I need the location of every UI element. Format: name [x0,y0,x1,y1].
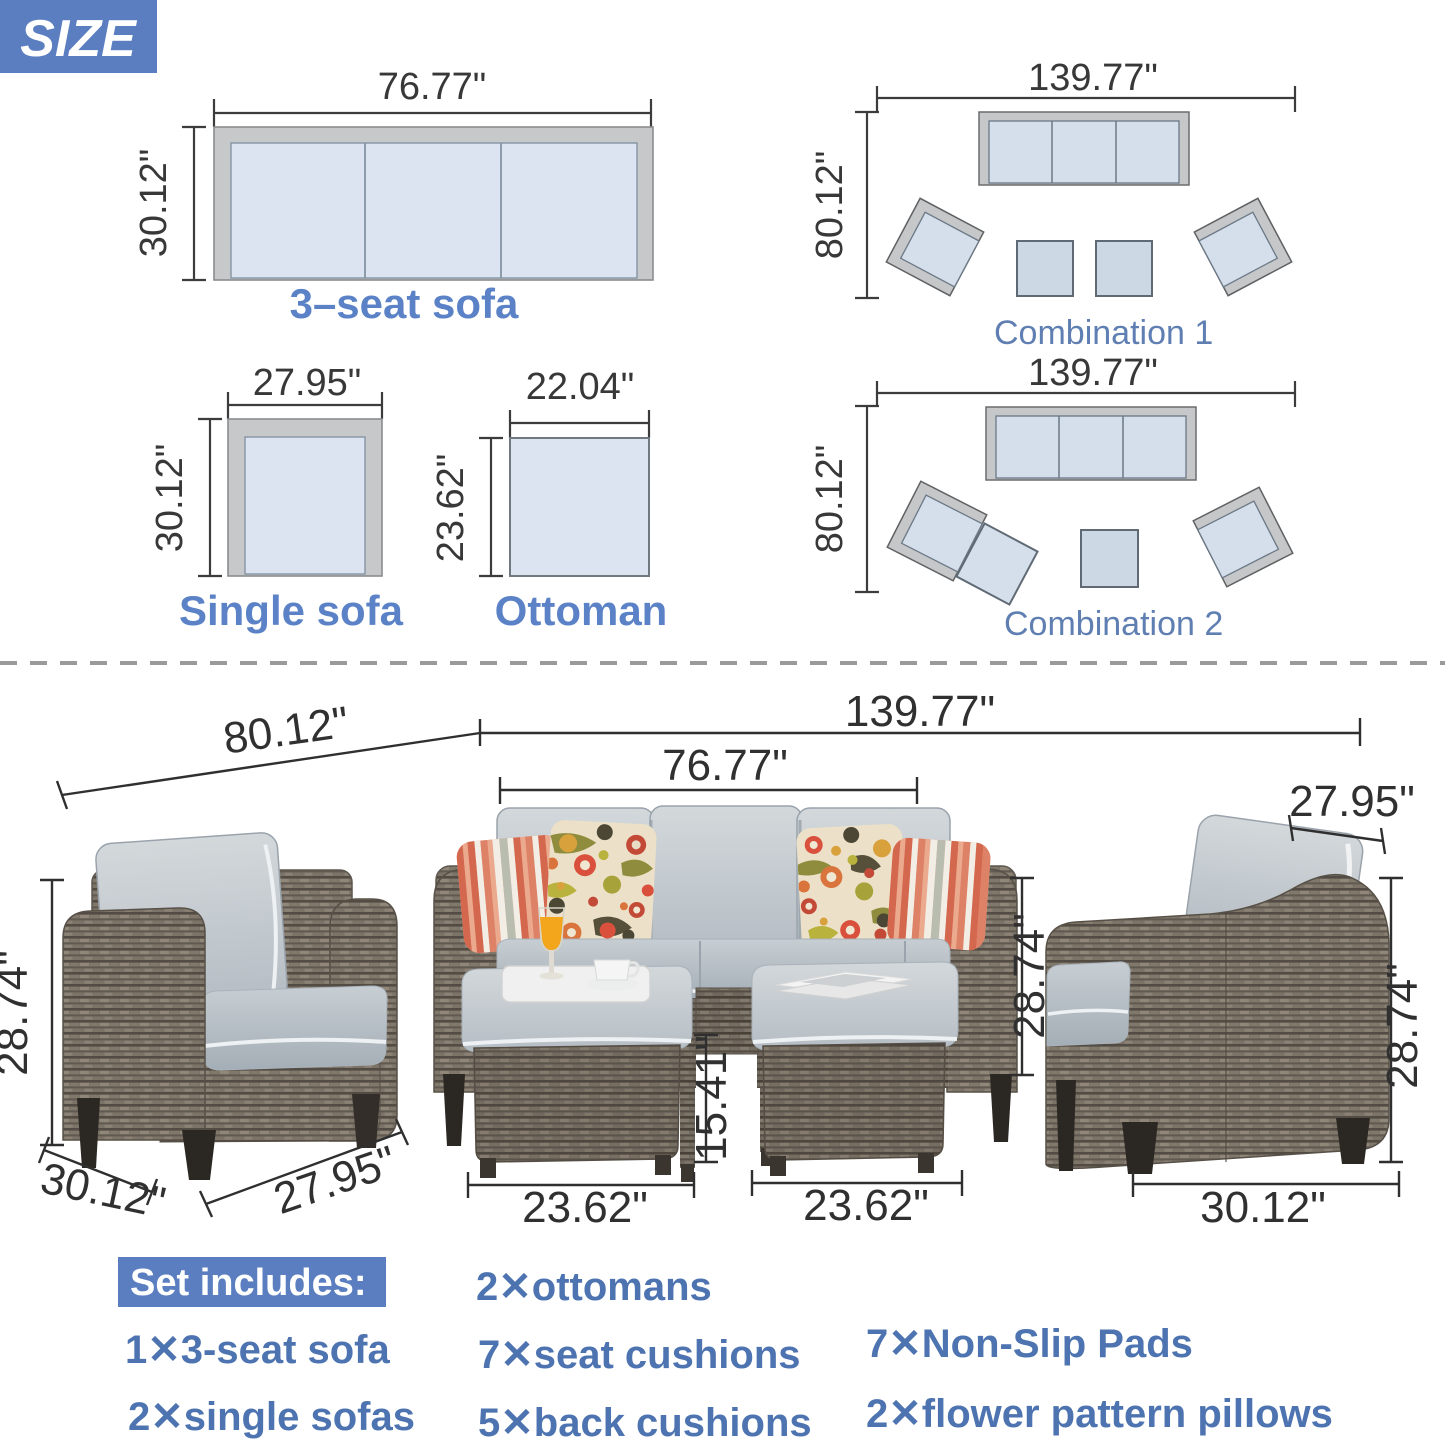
svg-text:139.77": 139.77" [1028,352,1158,394]
svg-text:Combination 1: Combination 1 [994,314,1213,352]
svg-text:SIZE: SIZE [20,10,137,68]
svg-text:139.77": 139.77" [845,687,995,736]
svg-text:23.62": 23.62" [430,454,472,563]
svg-text:Single sofa: Single sofa [179,587,404,634]
svg-text:Ottoman: Ottoman [495,587,668,634]
svg-text:28.74": 28.74" [1378,963,1427,1089]
svg-text:76.77": 76.77" [662,741,788,790]
svg-text:1✕3-seat sofa: 1✕3-seat sofa [125,1328,391,1372]
svg-text:Set includes:: Set includes: [130,1262,367,1304]
svg-text:2✕flower pattern pillows: 2✕flower pattern pillows [866,1392,1333,1436]
svg-text:23.62": 23.62" [522,1183,648,1232]
svg-text:Combination 2: Combination 2 [1004,605,1223,643]
svg-text:7✕seat cushions: 7✕seat cushions [478,1333,801,1377]
svg-text:80.12": 80.12" [809,445,851,554]
svg-text:5✕back cushions: 5✕back cushions [478,1401,812,1445]
svg-text:15.41": 15.41" [687,1035,736,1161]
svg-text:27.95": 27.95" [1289,777,1415,826]
svg-text:3–seat sofa: 3–seat sofa [290,280,519,327]
svg-text:22.04": 22.04" [526,366,635,408]
svg-text:28.74": 28.74" [1005,913,1054,1039]
svg-text:2✕ottomans: 2✕ottomans [476,1265,712,1309]
svg-text:2✕single sofas: 2✕single sofas [128,1395,415,1439]
svg-text:27.95": 27.95" [253,362,362,404]
svg-text:80.12": 80.12" [809,151,851,260]
svg-text:7✕Non-Slip Pads: 7✕Non-Slip Pads [866,1322,1193,1366]
svg-text:30.12": 30.12" [149,444,191,553]
svg-text:76.77": 76.77" [378,66,487,108]
svg-text:30.12": 30.12" [1200,1183,1326,1232]
svg-text:30.12": 30.12" [133,149,175,258]
svg-text:28.74": 28.74" [0,950,37,1076]
svg-text:23.62": 23.62" [803,1181,929,1230]
svg-text:139.77": 139.77" [1028,57,1158,99]
